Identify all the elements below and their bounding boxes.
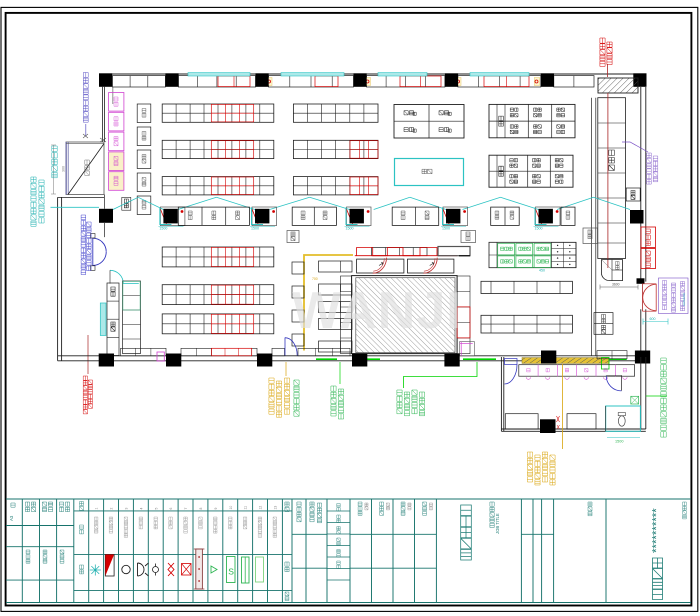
svg-text:4: 4 [139,508,143,510]
svg-text:S: S [228,567,234,577]
svg-text:300: 300 [62,166,66,172]
svg-text:5: 5 [154,508,158,510]
svg-text:10: 10 [229,506,233,510]
svg-text:A3: A3 [9,515,14,521]
svg-text:11: 11 [244,506,248,510]
svg-text:1500: 1500 [159,227,167,231]
svg-text:12: 12 [259,506,263,510]
svg-text:600: 600 [650,317,656,321]
svg-text:1500: 1500 [442,227,450,231]
svg-text:1500: 1500 [535,227,543,231]
svg-text:13: 13 [274,506,278,510]
svg-text:1500: 1500 [615,440,623,444]
svg-text:3: 3 [125,508,129,510]
svg-text:1500: 1500 [346,227,354,231]
svg-text:6: 6 [169,508,173,510]
svg-text:3600: 3600 [612,283,620,287]
svg-text:2: 2 [110,508,114,510]
svg-text:WANJI: WANJI [292,282,462,340]
svg-text:8: 8 [199,508,203,510]
svg-text:9: 9 [214,508,218,510]
svg-text:450: 450 [539,269,545,273]
svg-text:700: 700 [312,277,318,281]
svg-text:7: 7 [184,508,188,510]
svg-text:**********: ********** [652,508,664,553]
svg-text:JOB TITLE: JOB TITLE [495,513,500,534]
svg-text:1500: 1500 [251,227,259,231]
svg-text:1: 1 [95,508,99,510]
